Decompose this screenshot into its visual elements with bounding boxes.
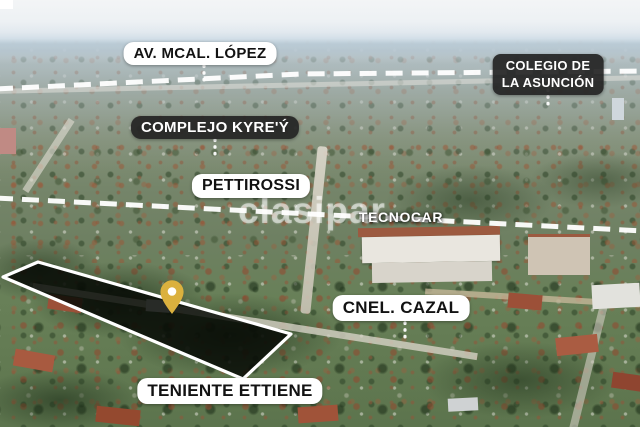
street-label-teniente-ettiene: TENIENTE ETTIENE [137,378,322,404]
aerial-listing-image: clasipar AV. MCAL. LÓPEZ COLEGIO DE LA A… [0,0,640,427]
landmark-label-complejo-kyrey: COMPLEJO KYRE'Ý [131,116,299,139]
street-label-cnel-cazal: CNEL. CAZAL [333,295,470,321]
street-label-av-mcal-lopez: AV. MCAL. LÓPEZ [124,42,277,65]
map-pin-hole [168,287,177,296]
landmark-label-colegio-de-la-asuncion: COLEGIO DE LA ASUNCIÓN [493,54,604,95]
label-line: LA ASUNCIÓN [502,75,595,92]
street-label-pettirossi: PETTIROSSI [192,174,310,198]
label-line: COLEGIO DE [502,58,595,75]
property-boundary-polygon [3,262,291,379]
corner-artifact [0,0,13,9]
landmark-label-tecnocar: TECNOCAR [359,209,443,225]
